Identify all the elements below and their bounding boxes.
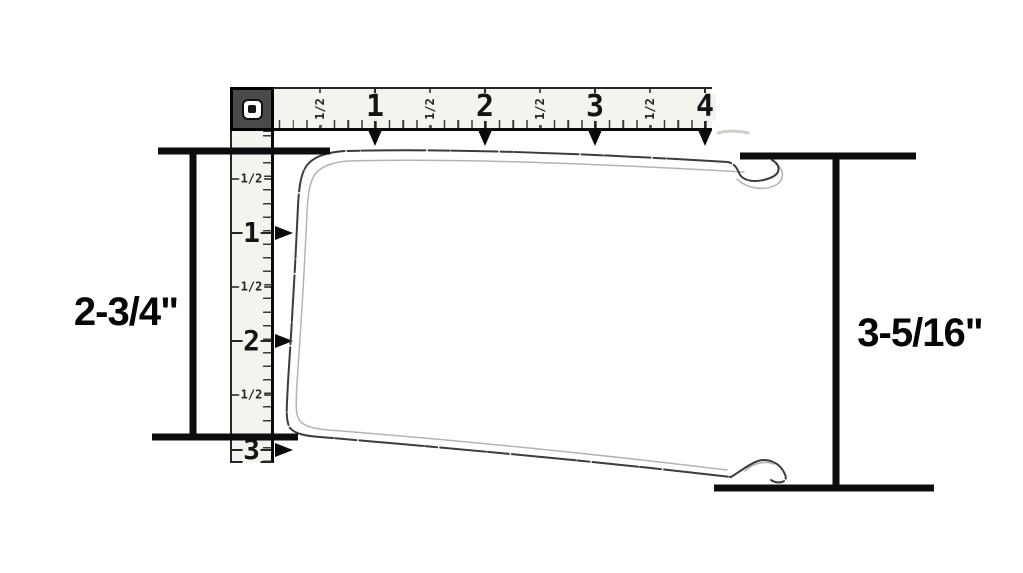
measurement-diagram: 1/2 1 1/2 2 1/2 3 1/2 <box>0 0 1023 573</box>
scan-smudge <box>718 131 748 133</box>
traced-part-inner-line <box>296 160 782 471</box>
left-dimension-label: 2-3/4" <box>50 290 202 335</box>
diagram-overlay <box>0 0 1023 573</box>
right-dimension-label: 3-5/16" <box>838 311 1002 356</box>
